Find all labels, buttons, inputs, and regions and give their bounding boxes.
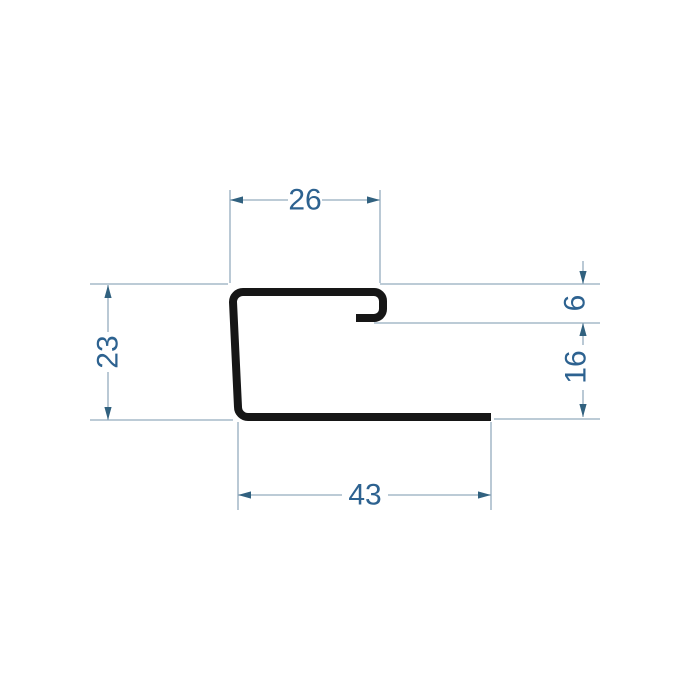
profile-outline [233, 292, 491, 417]
arrowhead-left [238, 491, 251, 498]
technical-drawing-canvas: 26 23 6 16 [0, 0, 700, 700]
dimension-label-hook: 6 [559, 295, 592, 312]
dimension-label-top: 26 [288, 184, 321, 217]
arrowhead-left [230, 196, 243, 203]
arrowhead-up [104, 285, 111, 298]
dimension-bottom-width: 43 [238, 422, 491, 512]
arrowhead-down [579, 404, 586, 417]
arrowhead-down [104, 407, 111, 420]
dimension-label-left: 23 [92, 335, 125, 368]
arrowhead-down [579, 271, 586, 284]
arrowhead-up [579, 323, 586, 336]
profile-path [233, 292, 491, 417]
drawing-page: 26 23 6 16 [0, 0, 700, 700]
dimension-right-lower-height: 16 [494, 323, 600, 419]
dimension-top-width: 26 [230, 184, 380, 284]
dimension-hook-depth: 6 [374, 261, 600, 323]
arrowhead-right [367, 196, 380, 203]
dimension-left-height: 23 [90, 284, 233, 420]
dimension-label-right-lower: 16 [560, 350, 593, 383]
dimension-label-bottom: 43 [348, 479, 381, 512]
arrowhead-right [478, 491, 491, 498]
